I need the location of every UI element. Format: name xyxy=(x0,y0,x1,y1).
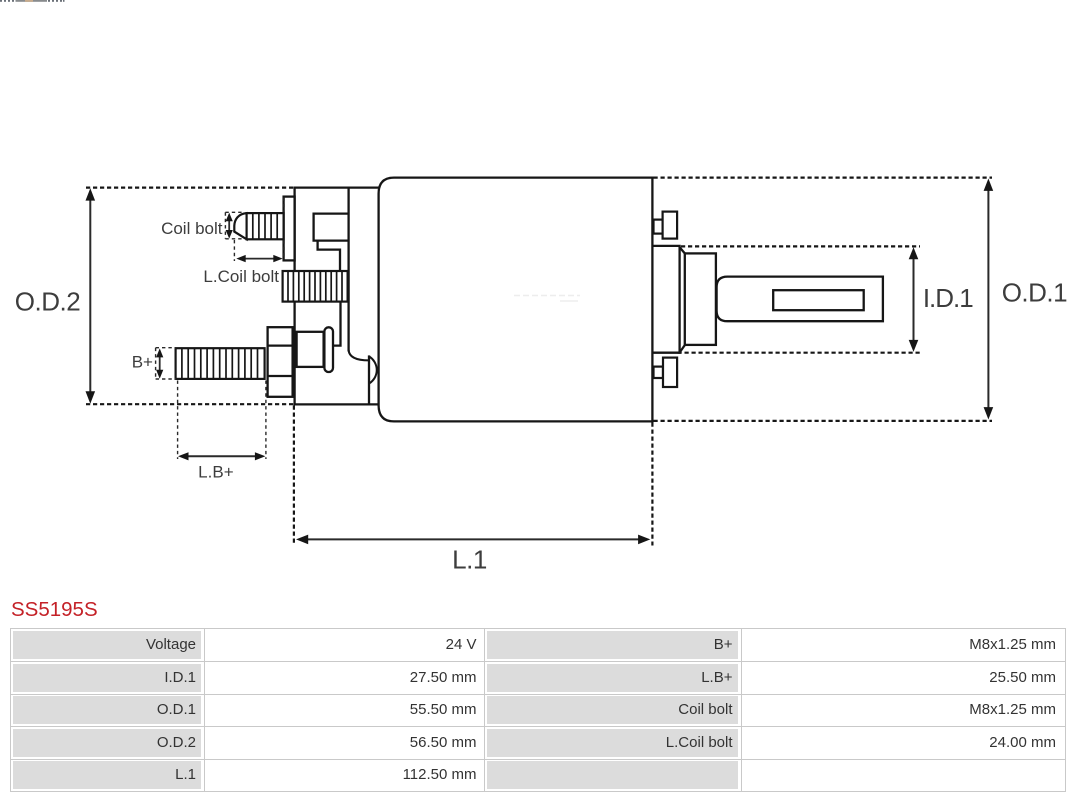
svg-text:O.D.2: O.D.2 xyxy=(15,286,80,316)
svg-text:B+: B+ xyxy=(132,353,153,372)
svg-text:L.Coil bolt: L.Coil bolt xyxy=(203,267,279,286)
svg-text:L.B+: L.B+ xyxy=(198,462,234,481)
svg-text:I.D.1: I.D.1 xyxy=(923,283,973,313)
svg-text:O.D.1: O.D.1 xyxy=(1002,278,1067,308)
svg-text:L.1: L.1 xyxy=(452,545,487,575)
svg-text:Coil bolt: Coil bolt xyxy=(161,219,223,238)
